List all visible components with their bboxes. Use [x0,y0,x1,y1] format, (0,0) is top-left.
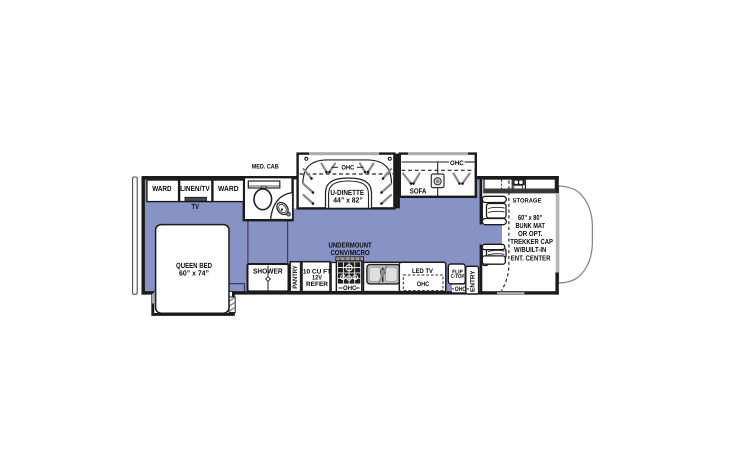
svg-text:CONV/MICRO: CONV/MICRO [330,248,370,257]
svg-text:SHOWER: SHOWER [253,267,283,276]
svg-text:PANTRY: PANTRY [292,265,299,289]
svg-text:OHC: OHC [417,281,430,288]
svg-text:WARD: WARD [218,184,239,193]
svg-text:OHC: OHC [450,160,464,167]
svg-text:LED TV: LED TV [412,268,434,275]
svg-text:44” x 82”: 44” x 82” [333,195,363,204]
svg-text:ENT. CENTER: ENT. CENTER [511,253,551,262]
svg-text:OHC: OHC [343,285,357,292]
svg-text:REFER: REFER [306,281,328,288]
svg-text:MED. CAB: MED. CAB [252,164,279,171]
svg-text:LINEN/TV: LINEN/TV [180,184,210,193]
svg-text:OHC: OHC [341,165,354,172]
svg-text:ENTRY: ENTRY [469,270,476,292]
svg-text:OHC: OHC [455,286,467,293]
svg-text:TV: TV [192,202,200,211]
svg-text:SOFA: SOFA [410,186,427,195]
svg-text:60” x 74”: 60” x 74” [179,268,209,277]
svg-text:WARD: WARD [152,184,172,193]
svg-text:STORAGE: STORAGE [513,198,542,205]
svg-text:C-TOP: C-TOP [451,274,465,280]
